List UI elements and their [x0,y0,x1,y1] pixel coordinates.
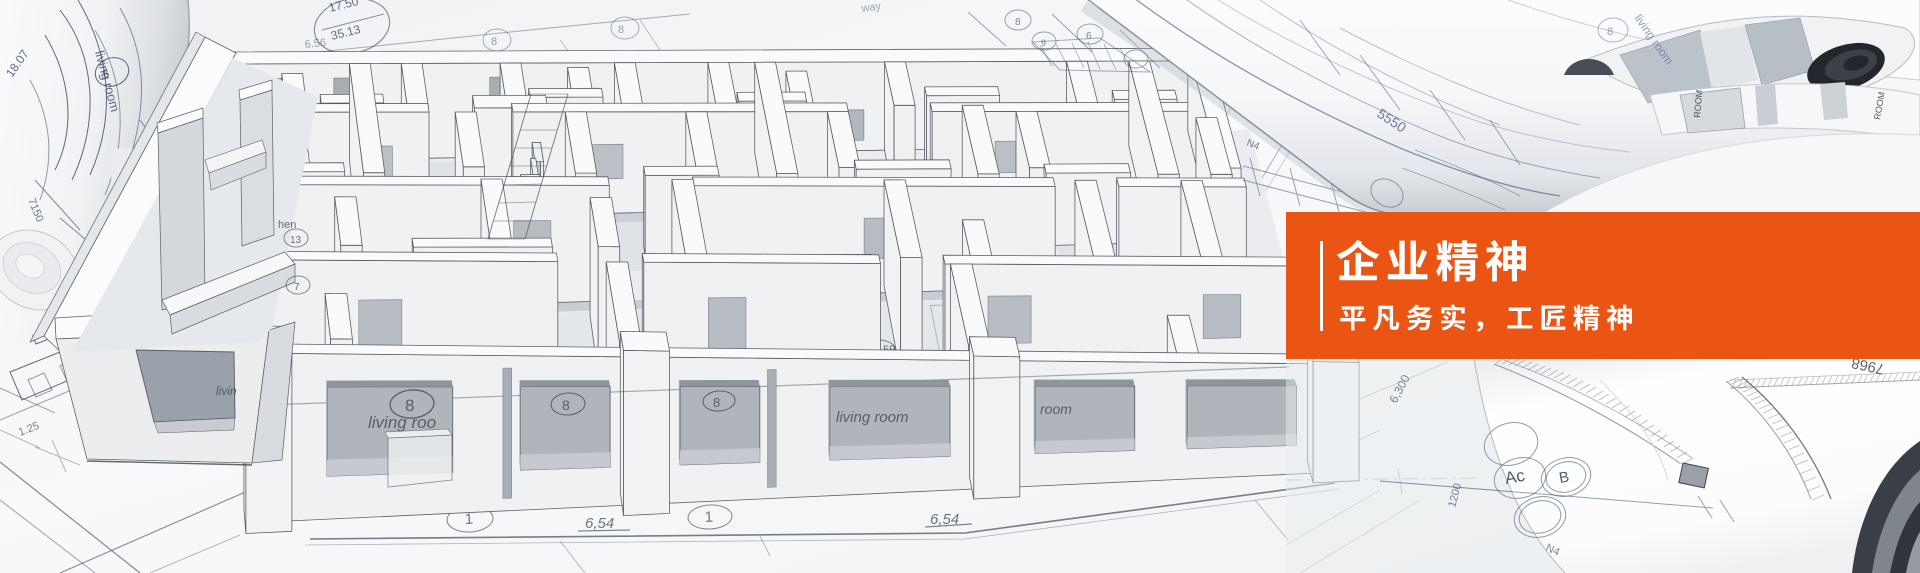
svg-text:8: 8 [562,397,570,413]
svg-text:livin: livin [216,384,237,398]
svg-text:hen: hen [278,219,296,231]
svg-text:Ac: Ac [1503,466,1526,488]
svg-text:8: 8 [1607,26,1613,38]
svg-text:8: 8 [713,395,720,410]
svg-text:8: 8 [491,36,497,48]
svg-text:living roo: living roo [368,413,436,432]
svg-text:9: 9 [1041,38,1046,48]
svg-text:8: 8 [618,24,624,36]
svg-text:6: 6 [1086,31,1092,42]
svg-text:6,54: 6,54 [585,515,614,532]
svg-text:7: 7 [294,282,300,293]
svg-text:6,54: 6,54 [930,511,959,528]
svg-text:6.56: 6.56 [304,37,327,51]
svg-text:1: 1 [704,509,713,526]
svg-text:1: 1 [464,511,473,528]
svg-text:room: room [1040,401,1072,417]
svg-text:living room: living room [836,409,909,426]
svg-text:13: 13 [290,235,302,246]
svg-text:8: 8 [1015,17,1021,28]
